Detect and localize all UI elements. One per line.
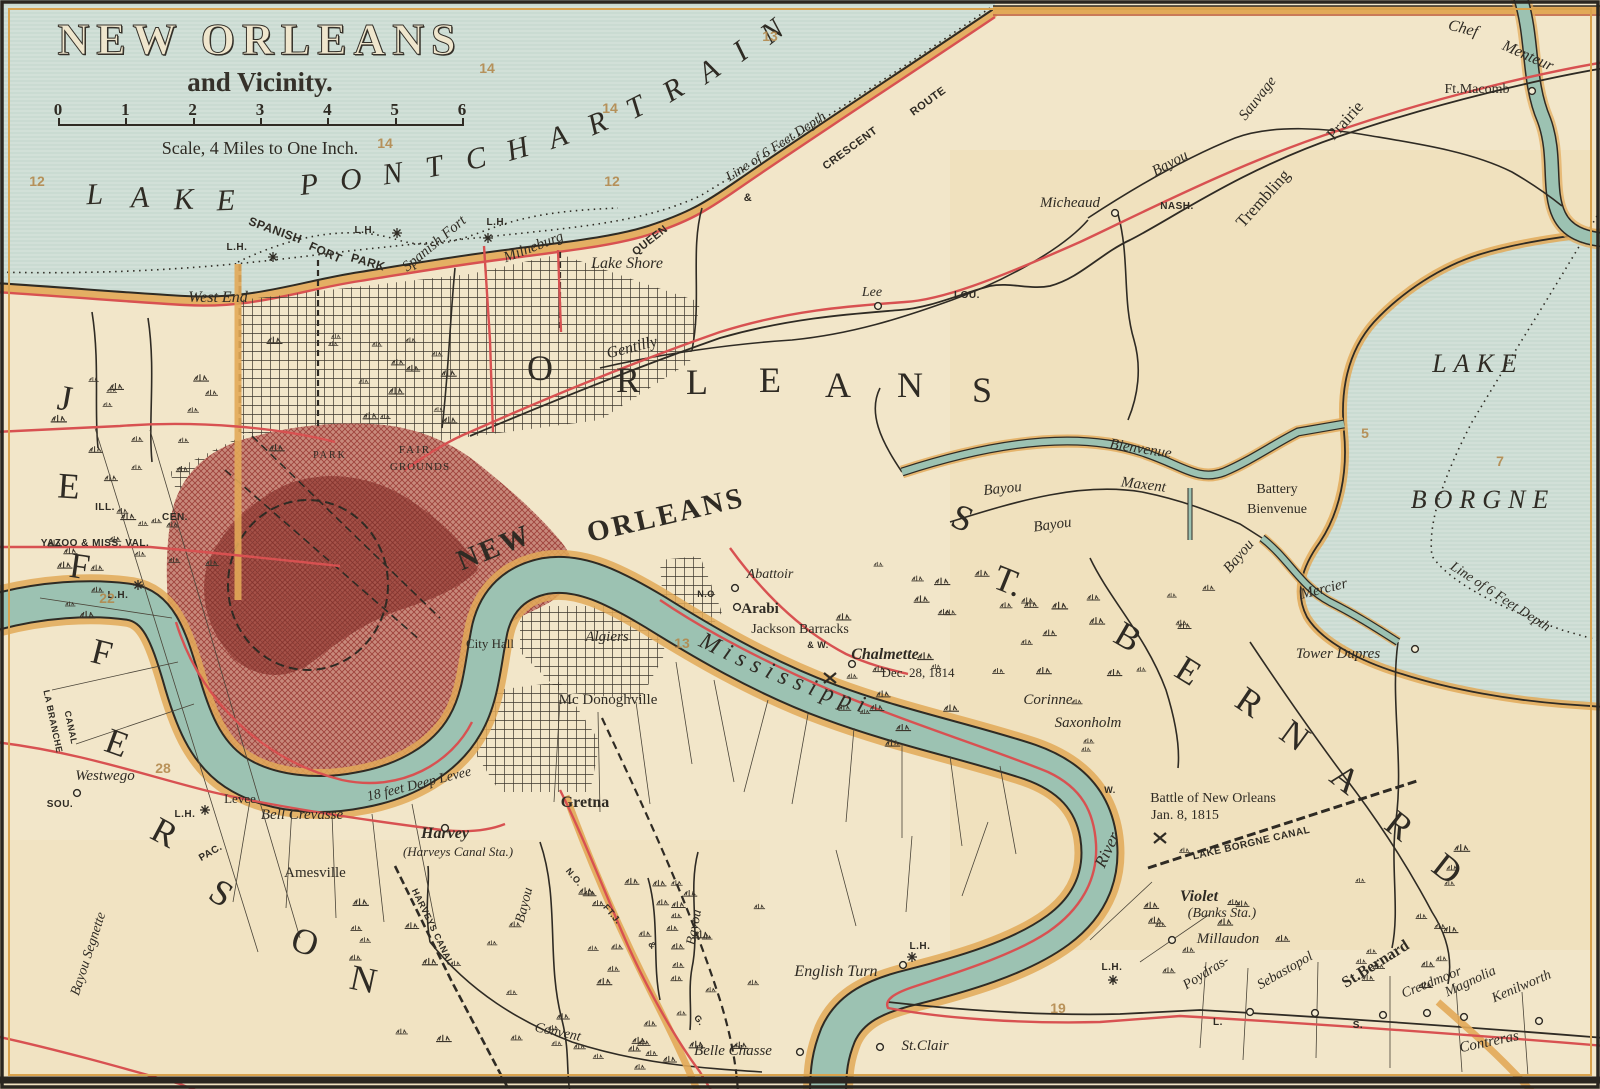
map-label: Battery: [1256, 482, 1297, 497]
map-label: Bell Crevasse: [261, 807, 344, 823]
map-label: L.: [1213, 1017, 1223, 1028]
scale-tick-label: 4: [317, 100, 337, 120]
map-label: Levee: [224, 791, 256, 806]
map-label: W.: [1104, 785, 1116, 795]
map-label: A: [825, 365, 851, 405]
map-label: A: [128, 181, 150, 215]
map-label: PARK: [313, 450, 347, 461]
map-label: L.H.: [175, 809, 196, 820]
lighthouse-icon: [268, 252, 278, 262]
scale-bar: 0123456: [58, 106, 462, 136]
lighthouse-icon: [392, 228, 402, 238]
map-label: Jackson Barracks: [751, 622, 849, 637]
station-marker: [797, 1049, 804, 1056]
map-label: L.H.: [1102, 962, 1123, 973]
map-stage: Mississippi LAKEPONTCHARTRAINLAKEBORGNEJ…: [0, 0, 1600, 1089]
station-marker: [1312, 1010, 1319, 1017]
map-label: Abattoir: [746, 567, 794, 582]
map-label: West End: [188, 289, 248, 306]
map-label: Violet: [1180, 888, 1219, 905]
plate-number: 28: [155, 760, 171, 776]
map-label: BORGNE: [1411, 485, 1556, 514]
map-label: Tower Dupres: [1296, 646, 1380, 662]
map-label: Harvey: [420, 825, 470, 842]
plate-number: 13: [674, 635, 690, 651]
map-label: St.Clair: [901, 1038, 948, 1054]
plate-number: 7: [1496, 453, 1504, 469]
plate-number: 12: [29, 173, 45, 189]
map-label: FAIR: [399, 444, 431, 456]
station-marker: [1169, 937, 1176, 944]
map-label: Bienvenue: [1247, 502, 1307, 517]
map-label: R: [616, 360, 640, 400]
map-label: E: [759, 360, 781, 400]
plate-number: 19: [1050, 1000, 1066, 1016]
map-label: Millaudon: [1196, 931, 1260, 947]
map-label: L.H.: [227, 242, 248, 253]
map-label: (Harveys Canal Sta.): [403, 844, 513, 859]
map-label: Jan. 8, 1815: [1151, 808, 1219, 823]
map-subtitle: and Vicinity.: [55, 67, 465, 98]
map-label: N.O: [697, 589, 715, 599]
map-label: S.: [1353, 1020, 1363, 1031]
map-label: Westwego: [75, 768, 135, 784]
scale-tick-label: 5: [385, 100, 405, 120]
map-label: S: [972, 370, 992, 410]
map-label: English Turn: [793, 963, 877, 980]
map-label: Algiers: [584, 629, 628, 645]
lighthouse-icon: [1108, 975, 1118, 985]
plate-number: 14: [602, 100, 618, 116]
map-label: Belle Chasse: [694, 1043, 772, 1059]
map-label: L: [686, 362, 708, 402]
map-label: Mc Donoghville: [559, 692, 658, 708]
map-label: Micheaud: [1039, 195, 1100, 211]
map-label: O: [527, 348, 553, 388]
map-label: K: [172, 183, 196, 217]
map-label: City Hall: [466, 636, 514, 651]
station-marker: [1529, 88, 1536, 95]
map-label: & W.: [807, 640, 829, 650]
map-label: Saxonholm: [1055, 715, 1122, 731]
station-marker: [1380, 1012, 1387, 1019]
scale-tick-label: 0: [48, 100, 68, 120]
station-marker: [734, 604, 741, 611]
station-marker: [1247, 1009, 1254, 1016]
lighthouse-icon: [200, 805, 210, 815]
title-block: NEW ORLEANS and Vicinity. 0123456 Scale,…: [55, 14, 465, 159]
map-label: O: [338, 162, 364, 197]
lighthouse-icon: [483, 233, 493, 243]
map-label: N: [897, 365, 923, 405]
map-title: NEW ORLEANS: [55, 14, 465, 65]
station-marker: [1536, 1018, 1543, 1025]
plate-number: 12: [604, 173, 620, 189]
map-label: LAKE: [1431, 349, 1524, 378]
map-label: ILL.: [95, 502, 115, 513]
map-label: Chalmette: [851, 646, 919, 663]
station-marker: [1112, 210, 1119, 217]
plate-number: 14: [479, 60, 495, 76]
map-label: E: [56, 465, 81, 506]
map-label: P: [297, 167, 320, 202]
scale-tick-label: 1: [115, 100, 135, 120]
scale-tick-label: 6: [452, 100, 472, 120]
map-label: LOU.: [954, 290, 980, 301]
map-label: SOU.: [47, 799, 73, 810]
map-label: E: [215, 184, 235, 218]
map-label: L.H.: [487, 217, 508, 228]
map-label: (Banks Sta.): [1188, 906, 1257, 921]
plate-number: 5: [1361, 425, 1369, 441]
map-label: Arabi: [741, 601, 779, 617]
station-marker: [1424, 1010, 1431, 1017]
station-marker: [877, 1044, 884, 1051]
station-marker: [900, 962, 907, 969]
map-label: Ft.Macomb: [1445, 82, 1510, 97]
station-marker: [732, 585, 739, 592]
station-marker: [1461, 1014, 1468, 1021]
map-label: Dec. 28, 1814: [882, 665, 955, 680]
plate-number: 22: [99, 590, 115, 606]
map-label: NASH.: [1160, 201, 1194, 212]
lighthouse-icon: [133, 580, 143, 590]
station-marker: [74, 790, 81, 797]
map-label: &: [744, 192, 752, 204]
map-label: L.H.: [355, 225, 376, 236]
scale-note: Scale, 4 Miles to One Inch.: [55, 138, 465, 159]
scale-tick-label: 2: [183, 100, 203, 120]
plate-number: 13: [762, 28, 778, 44]
station-marker: [875, 303, 882, 310]
station-marker: [1412, 646, 1419, 653]
map-label: L: [85, 178, 104, 212]
map-label: Gretna: [561, 794, 610, 811]
map-label: L.H.: [910, 941, 931, 952]
map-label: Lake Shore: [590, 255, 663, 272]
map-label: GROUNDS: [390, 461, 450, 473]
map-label: Lee: [861, 285, 882, 300]
map-canvas[interactable]: Mississippi LAKEPONTCHARTRAINLAKEBORGNEJ…: [0, 0, 1600, 1089]
map-label: Battle of New Orleans: [1150, 791, 1276, 806]
map-label: YAZOO & MISS. VAL.: [41, 538, 149, 549]
map-label: Corinne: [1023, 692, 1073, 708]
map-label: Amesville: [284, 865, 346, 881]
map-label: CEN.: [162, 512, 188, 523]
lighthouse-icon: [907, 952, 917, 962]
scale-tick-label: 3: [250, 100, 270, 120]
